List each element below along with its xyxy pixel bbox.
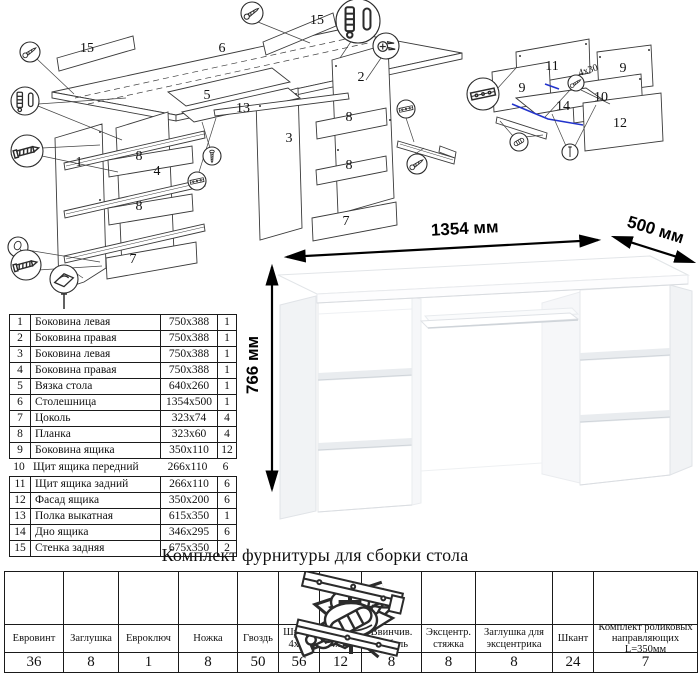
- part-number: 12: [10, 493, 30, 508]
- part-number-label: 12: [613, 116, 627, 131]
- parts-list-table: 1Боковина левая750х38812Боковина правая7…: [9, 314, 237, 557]
- part-number: 8: [10, 427, 30, 442]
- part-qty: 4: [217, 427, 236, 442]
- hardware-icons-row: [5, 572, 697, 624]
- part-name: Щит ящика задний: [30, 477, 160, 492]
- callout-circle: [336, 0, 380, 43]
- part-number-label: 15: [80, 41, 94, 56]
- part-number: 7: [10, 411, 30, 426]
- screw-icon-callout: [20, 42, 40, 62]
- part-size: 266х110: [159, 460, 216, 475]
- part-number: 14: [10, 525, 30, 540]
- part-qty: 1: [217, 315, 236, 330]
- part-qty: 6: [217, 493, 236, 508]
- hardware-kit-table: ЕвровинтЗаглушкаЕвроключНожкаГвоздьШуруп…: [4, 571, 698, 673]
- part-name: Боковина правая: [30, 363, 160, 378]
- nail-icon-callout: [562, 144, 578, 160]
- screw-icon-callout: [241, 2, 263, 24]
- part-number-label: 11: [545, 59, 558, 74]
- assembly-instruction-sheet: 15615513321848788711994х30101412: [0, 0, 700, 677]
- part-name: Щит ящика передний: [29, 460, 159, 475]
- part-number: 9: [10, 443, 30, 458]
- part-name: Планка: [30, 427, 160, 442]
- rail-icon-callout: [397, 100, 415, 118]
- part-number-label: 14: [556, 99, 570, 114]
- part-size: 750х388: [160, 347, 217, 362]
- part-number-label: 9: [519, 81, 526, 96]
- part-qty: 1: [217, 509, 236, 524]
- part-number: 6: [10, 395, 30, 410]
- part-qty: 6: [217, 477, 236, 492]
- part-number-label: 15: [310, 13, 324, 28]
- part-qty: 12: [217, 443, 236, 458]
- euro-screw-icon-callout: [11, 135, 43, 167]
- part-qty: 4: [217, 411, 236, 426]
- part-name: Боковина левая: [30, 315, 160, 330]
- table-row: 1Боковина левая750х3881: [10, 315, 236, 330]
- part-number: 3: [10, 347, 30, 362]
- table-row: 5Вязка стола640х2601: [10, 378, 236, 394]
- table-row: 2Боковина правая750х3881: [10, 330, 236, 346]
- table-row: 13Полка выкатная615х3501: [10, 508, 236, 524]
- part-number: 11: [10, 477, 30, 492]
- part-size: 640х260: [160, 379, 217, 394]
- depth-dimension-label: 500 мм: [625, 213, 686, 247]
- table-row: 3Боковина левая750х3881: [10, 346, 236, 362]
- part-size: 750х388: [160, 363, 217, 378]
- part-name: Столешница: [30, 395, 160, 410]
- foot-icon-callout: [50, 265, 78, 293]
- part-qty: 6: [216, 460, 235, 475]
- table-row: 12Фасад ящика350х2006: [10, 492, 236, 508]
- part-name: Фасад ящика: [30, 493, 160, 508]
- part-size: 750х388: [160, 331, 217, 346]
- part-name: Полка выкатная: [30, 509, 160, 524]
- part-qty: 1: [217, 379, 236, 394]
- part-number-label: 8: [346, 158, 353, 173]
- part-size: 615х350: [160, 509, 217, 524]
- part-qty: 6: [217, 525, 236, 540]
- part-number: 10: [9, 460, 29, 475]
- part-number-label: 8: [346, 110, 353, 125]
- part-qty: 1: [217, 331, 236, 346]
- part-size: 1354х500: [160, 395, 217, 410]
- part-size: 350х110: [160, 443, 217, 458]
- part-name: Боковина ящика: [30, 443, 160, 458]
- part-number-label: 3: [286, 131, 293, 146]
- part-number-label: 7: [130, 252, 137, 267]
- desk-render: 1354 мм 500 мм 766 мм: [240, 213, 700, 553]
- table-row: 9Боковина ящика350х11012: [10, 442, 236, 458]
- part-number: 1: [10, 315, 30, 330]
- part-number-label: 10: [594, 90, 608, 105]
- part-number-label: 4: [154, 164, 161, 179]
- euro-screw-icon-callout: [11, 250, 41, 280]
- part-number-label: 5: [204, 88, 211, 103]
- part-number: 4: [10, 363, 30, 378]
- table-row: 7Цоколь323х744: [10, 410, 236, 426]
- pin-pair-icon-callout: [11, 87, 39, 115]
- part-number-label: 6: [219, 41, 226, 56]
- part-size: 350х200: [160, 493, 217, 508]
- part-number-label: 8: [136, 149, 143, 164]
- callout-circle: [11, 87, 39, 115]
- slide-rail-icon-cell: [593, 572, 697, 624]
- part-name: Цоколь: [30, 411, 160, 426]
- part-number: 2: [10, 331, 30, 346]
- part-qty: 1: [217, 347, 236, 362]
- part-name: Боковина левая: [30, 347, 160, 362]
- table-row: 4Боковина правая750х3881: [10, 362, 236, 378]
- part-size: 323х74: [160, 411, 217, 426]
- part-size: 323х60: [160, 427, 217, 442]
- shkant-icon-callout: [510, 133, 528, 151]
- part-size: 266х110: [160, 477, 217, 492]
- screw-icon-callout: [407, 154, 427, 174]
- part-number-label: 2: [358, 70, 365, 85]
- table-row: 10Щит ящика передний266х1106: [9, 460, 237, 475]
- part-number-label: 9: [620, 61, 627, 76]
- part-number: 5: [10, 379, 30, 394]
- cam-screws-icon-callout: [373, 33, 399, 59]
- part-size: 346х295: [160, 525, 217, 540]
- part-qty: 1: [217, 395, 236, 410]
- table-row: 8Планка323х604: [10, 426, 236, 442]
- part-number-label: 8: [136, 199, 143, 214]
- part-number-label: 13: [236, 101, 250, 116]
- rail-icon-callout: [467, 78, 499, 110]
- screw-vert-icon-callout: [203, 147, 221, 165]
- table-row: 6Столешница1354х5001: [10, 394, 236, 410]
- rail-icon-callout: [188, 172, 206, 190]
- width-dimension-label: 1354 мм: [430, 217, 499, 240]
- table-row: 11Щит ящика задний266х1106: [10, 477, 236, 492]
- slide-rail-icon: [593, 572, 697, 624]
- part-name: Боковина правая: [30, 331, 160, 346]
- pin-pair-icon-callout: [336, 0, 380, 43]
- part-name: Вязка стола: [30, 379, 160, 394]
- table-row: 14Дно ящика346х2956: [10, 524, 236, 540]
- part-number-label: 1: [76, 155, 83, 170]
- part-qty: 1: [217, 363, 236, 378]
- part-size: 750х388: [160, 315, 217, 330]
- part-name: Дно ящика: [30, 525, 160, 540]
- hardware-kit-title: Комплект фурнитуры для сборки стола: [0, 545, 630, 566]
- part-number: 13: [10, 509, 30, 524]
- height-dimension-label: 766 мм: [243, 336, 262, 394]
